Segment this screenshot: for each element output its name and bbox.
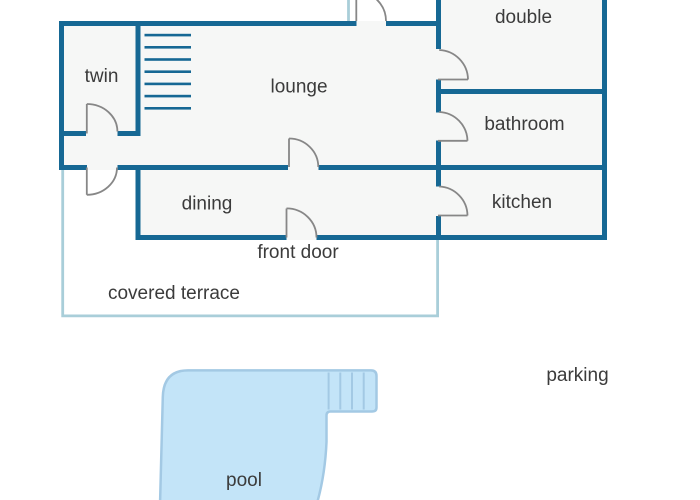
- svg-text:covered terrace: covered terrace: [108, 283, 240, 304]
- svg-text:kitchen: kitchen: [492, 192, 552, 213]
- svg-text:twin: twin: [85, 66, 119, 87]
- svg-text:dining: dining: [182, 194, 233, 215]
- svg-text:lounge: lounge: [270, 77, 327, 98]
- svg-text:parking: parking: [546, 365, 608, 386]
- svg-text:front door: front door: [257, 242, 339, 263]
- svg-text:double: double: [495, 7, 552, 28]
- svg-text:pool: pool: [226, 470, 262, 491]
- svg-text:bathroom: bathroom: [484, 114, 564, 135]
